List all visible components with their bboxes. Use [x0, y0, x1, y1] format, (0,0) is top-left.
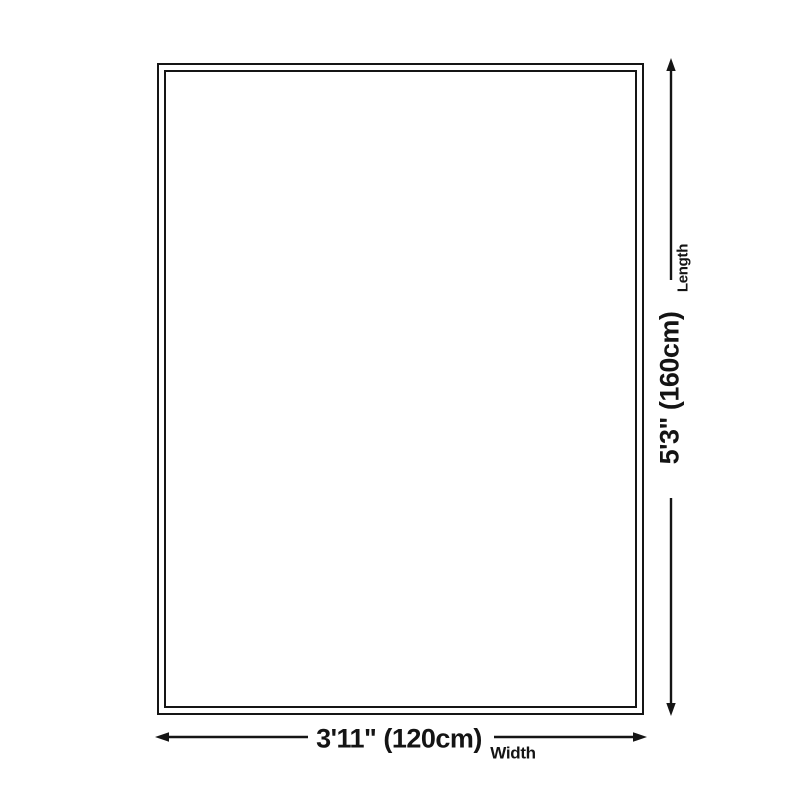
length-value: 5'3" (160cm): [657, 312, 684, 465]
length-label: Length: [676, 244, 691, 292]
arrow-left-icon: [155, 732, 169, 742]
width-value: 3'11" (120cm): [316, 726, 482, 753]
width-label: Width: [490, 745, 536, 762]
arrow-right-icon: [633, 732, 647, 742]
rug-inner-border: [164, 70, 637, 708]
rug-size-diagram: 5'3" (160cm) Length 3'11" (120cm) Width: [0, 0, 800, 800]
arrow-down-icon: [666, 703, 675, 716]
rug-outline: [157, 63, 644, 715]
